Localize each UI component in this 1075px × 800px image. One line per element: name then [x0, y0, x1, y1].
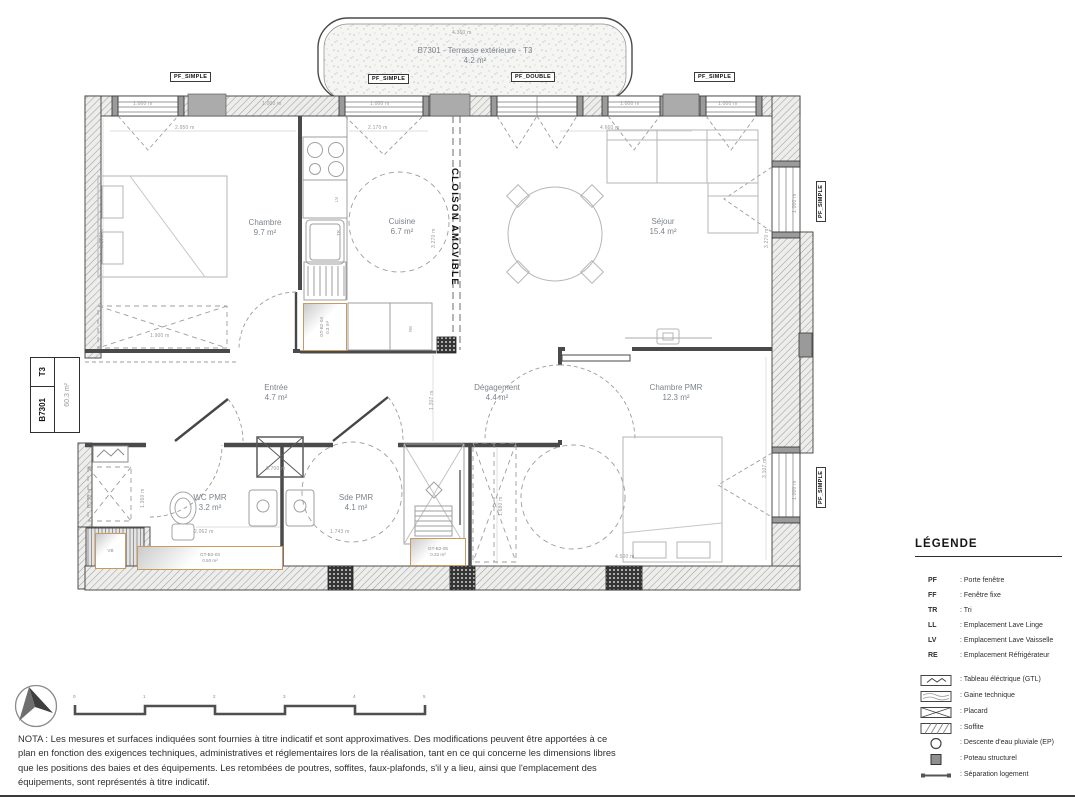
window-tag-pf-simple-right-2: PF_SIMPLE	[816, 467, 826, 508]
room-name: Chambre	[249, 218, 282, 228]
room-name: Entrée	[264, 383, 288, 393]
dimension: 1.000 m	[133, 101, 152, 107]
legend-key-tr: TR	[928, 607, 937, 614]
legend-desc-soffite: : Soffite	[960, 724, 984, 731]
room-name: WC PMR	[193, 493, 226, 503]
dimension: 1.000 m	[718, 101, 737, 107]
window-tag-pf-simple-3: PF_SIMPLE	[694, 72, 735, 82]
duct-gt-b2-03: GT-B2-030.50 m²	[137, 546, 283, 570]
dimension: 1.743 m	[330, 529, 349, 535]
room-label-wc-pmr: WC PMR 3.2 m²	[193, 493, 226, 513]
window-tag-pf-simple-2: PF_SIMPLE	[368, 74, 409, 84]
duct-area: 0.32 m²	[428, 552, 448, 558]
dimension: 1.207 m	[429, 391, 435, 410]
room-name: Dégagement	[474, 383, 520, 393]
duct-gt-b2-04: GT-B2-040.3 m²	[303, 303, 347, 351]
dimension: 1.900 m	[150, 333, 169, 339]
legend-desc-tr: : Tri	[960, 607, 972, 614]
kitchen-duct-block	[437, 337, 456, 353]
sofa	[607, 130, 758, 233]
legend-desc-ll: : Emplacement Lave Linge	[960, 622, 1043, 629]
scale-tick: 0	[73, 694, 76, 699]
scale-tick: 3	[283, 694, 286, 699]
door-leaves	[175, 292, 388, 441]
legend-key-ff: FF	[928, 592, 937, 599]
bed-chambre-pmr	[623, 437, 722, 562]
room-label-chambre: Chambre 9.7 m²	[249, 218, 282, 238]
tv-console	[625, 329, 712, 344]
room-area: 9.7 m²	[249, 228, 282, 238]
title-block-type-cell: T3	[31, 358, 54, 387]
room-area: 4.7 m²	[264, 393, 288, 403]
dimension: 0.700 m	[266, 466, 285, 472]
title-block-code-cell: B7301	[31, 387, 54, 432]
room-area: 15.4 m²	[649, 227, 676, 237]
scale-bar	[75, 705, 425, 714]
electrical-panel-icon	[918, 674, 954, 687]
shower	[404, 444, 464, 544]
dimension: 2.062 m	[194, 529, 213, 535]
duct-area: 0.50 m²	[200, 558, 220, 564]
room-label-chambre-pmr: Chambre PMR 12.3 m²	[650, 383, 703, 403]
room-area: 6.7 m²	[389, 227, 416, 237]
toilet	[170, 492, 196, 540]
electrical-panel	[93, 446, 128, 462]
rainwater-downpipe-icon	[918, 737, 954, 750]
duct-vb: VB	[95, 533, 126, 569]
apartment-type: T3	[38, 367, 47, 376]
dimension: 2.950 m	[175, 125, 194, 131]
dimension: 1.000 m	[262, 101, 281, 107]
nota-text: NOTA : Les mesures et surfaces indiquées…	[18, 732, 616, 790]
legend-desc-ep: : Descente d'eau pluviale (EP)	[960, 739, 1054, 746]
window-tag-pf-double: PF_DOUBLE	[511, 72, 555, 82]
terrace-name: B7301 - Terrasse extérieure - T3	[418, 46, 533, 56]
room-area: 3.2 m²	[193, 503, 226, 513]
dimension: 1.000 m	[370, 101, 389, 107]
dimension: 1.000 m	[792, 481, 798, 500]
technical-duct-icon	[918, 690, 954, 703]
scale-tick: 4	[353, 694, 356, 699]
room-label-sde-pmr: Sde PMR 4.1 m²	[339, 493, 373, 513]
north-arrow-icon	[16, 686, 57, 727]
legend-desc-pf: : Porte fenêtre	[960, 577, 1004, 584]
dishwasher-tag: LV	[334, 197, 339, 202]
legend-desc-poteau: : Poteau structurel	[960, 755, 1017, 762]
dimension: 0.750 m	[87, 489, 93, 508]
legend-key-re: RE	[928, 652, 938, 659]
dimension: 4.360 m	[452, 30, 471, 36]
legend-title: LÉGENDE	[915, 538, 978, 550]
removable-partition-label: CLOISON AMOVIBLE	[449, 168, 460, 286]
legend-key-lv: LV	[928, 637, 936, 644]
structural-post-icon	[918, 753, 954, 766]
room-name: Chambre PMR	[650, 383, 703, 393]
room-label-sejour: Séjour 15.4 m²	[649, 217, 676, 237]
floor-plan-page: B7301 - Terrasse extérieure - T3 4.2 m² …	[0, 0, 1075, 800]
scale-tick: 1	[143, 694, 146, 699]
apartment-area: 60.3 m²	[64, 383, 71, 407]
dimension: 1.000 m	[792, 194, 798, 213]
room-name: Cuisine	[389, 217, 416, 227]
dining-table	[507, 185, 604, 284]
legend-desc-lv: : Emplacement Lave Vaisselle	[960, 637, 1053, 644]
window-tag-pf-simple-right-1: PF_SIMPLE	[816, 181, 826, 222]
legend-desc-separation: : Séparation logement	[960, 771, 1029, 778]
scale-tick: 2	[213, 694, 216, 699]
dimension: 3.270 m	[431, 229, 437, 248]
closet-icon	[918, 706, 954, 719]
dimension: 4.660 m	[600, 125, 619, 131]
dimension: 3.107 m	[762, 459, 768, 478]
terrace-area: 4.2 m²	[418, 56, 533, 66]
duct-id: VB	[107, 548, 113, 554]
scale-tick: 5	[423, 694, 426, 699]
dimension: 3.270 m	[764, 229, 770, 248]
terrace-label: B7301 - Terrasse extérieure - T3 4.2 m²	[418, 46, 533, 66]
soffit-icon	[918, 722, 954, 735]
room-label-degagement: Dégagement 4.4 m²	[474, 383, 520, 403]
dimension: 1.000 m	[620, 101, 639, 107]
dimension: 2.170 m	[368, 125, 387, 131]
legend-desc-ff: : Fenêtre fixe	[960, 592, 1001, 599]
dimension: 1.360 m	[140, 489, 146, 508]
window-tag-pf-simple-1: PF_SIMPLE	[170, 72, 211, 82]
duct-area: 0.3 m²	[325, 317, 331, 337]
dimension: 4.500 m	[615, 554, 634, 560]
dimension: 3.270 m	[99, 229, 105, 248]
fridge-tag: RE	[408, 326, 413, 332]
bed-chambre	[98, 176, 227, 277]
room-label-cuisine: Cuisine 6.7 m²	[389, 217, 416, 237]
room-name: Sde PMR	[339, 493, 373, 503]
legend-desc-gaine: : Gaine technique	[960, 692, 1015, 699]
page-bottom-border	[0, 795, 1075, 797]
dimension: 1.680 m	[498, 497, 504, 516]
room-label-entree: Entrée 4.7 m²	[264, 383, 288, 403]
legend-key-pf: PF	[928, 577, 937, 584]
legend-divider	[915, 556, 1062, 557]
sorting-tag: TR	[336, 230, 341, 236]
room-area: 4.4 m²	[474, 393, 520, 403]
title-block: T3 B7301 60.3 m²	[30, 357, 80, 433]
duct-gt-b2-05: GT-B2-050.32 m²	[410, 538, 466, 566]
title-block-area-cell: 60.3 m²	[55, 358, 79, 432]
apartment-code: B7301	[38, 398, 47, 422]
room-name: Séjour	[649, 217, 676, 227]
legend-key-ll: LL	[928, 622, 937, 629]
room-area: 4.1 m²	[339, 503, 373, 513]
floor-plan-drawing	[0, 0, 1075, 800]
legend-desc-gtl: : Tableau éléctrique (GTL)	[960, 676, 1041, 683]
legend-desc-re: : Emplacement Réfrigérateur	[960, 652, 1049, 659]
room-area: 12.3 m²	[650, 393, 703, 403]
unit-separation-icon	[918, 769, 954, 782]
legend-desc-placard: : Placard	[960, 708, 988, 715]
